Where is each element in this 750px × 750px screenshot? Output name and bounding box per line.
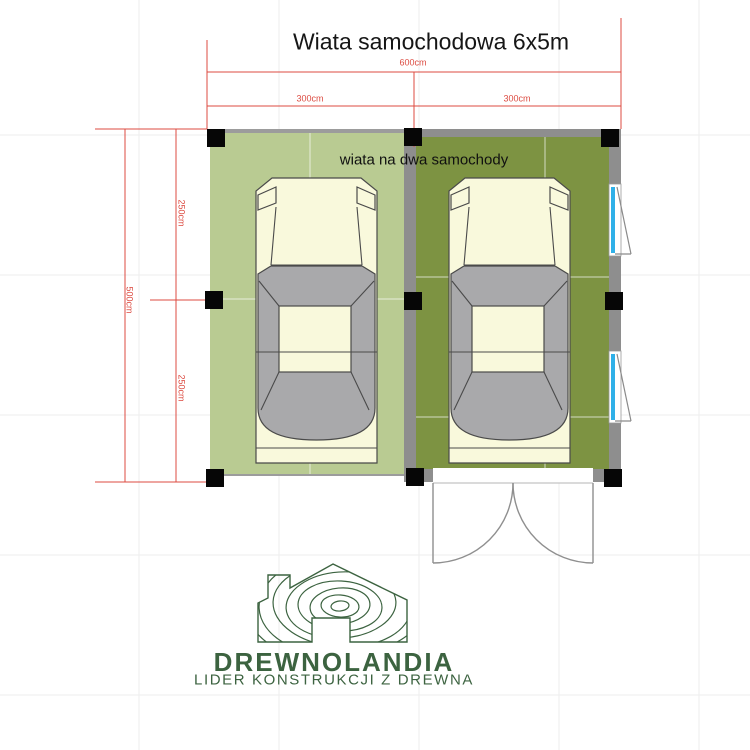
car-left [256,178,377,463]
carport-plan-page: Wiata samochodowa 6x5m wiata na dwa samo… [0,0,750,750]
window-symbol-bottom [609,351,631,423]
car-right [449,178,570,463]
left-bay-top-edge [207,129,404,133]
post-top-right [601,129,619,147]
double-door-symbol [433,468,593,563]
dim-total-width-label: 600cm [399,59,426,68]
logo-tagline: LIDER KONSTRUKCJI Z DREWNA [194,673,474,688]
dim-front-depth-label: 250cm [177,199,186,226]
post-top-center [404,128,422,146]
post-mid-left [205,291,223,309]
post-top-left [207,129,225,147]
left-bay-bottom-edge [207,474,404,476]
garage-top-wall [404,129,621,137]
post-bottom-center [406,468,424,486]
dim-left-bay-width-label: 300cm [296,95,323,104]
dim-rear-depth-label: 250cm [177,374,186,401]
dim-total-depth-label: 500cm [125,286,134,313]
plan-label: wiata na dwa samochody [340,153,508,168]
floor-plan-canvas [0,0,750,750]
post-mid-right [605,292,623,310]
dim-right-bay-width-label: 300cm [503,95,530,104]
post-bottom-right [604,469,622,487]
plan-title: Wiata samochodowa 6x5m [293,31,569,54]
post-bottom-left [206,469,224,487]
post-mid-center [404,292,422,310]
window-symbol-top [609,184,631,256]
